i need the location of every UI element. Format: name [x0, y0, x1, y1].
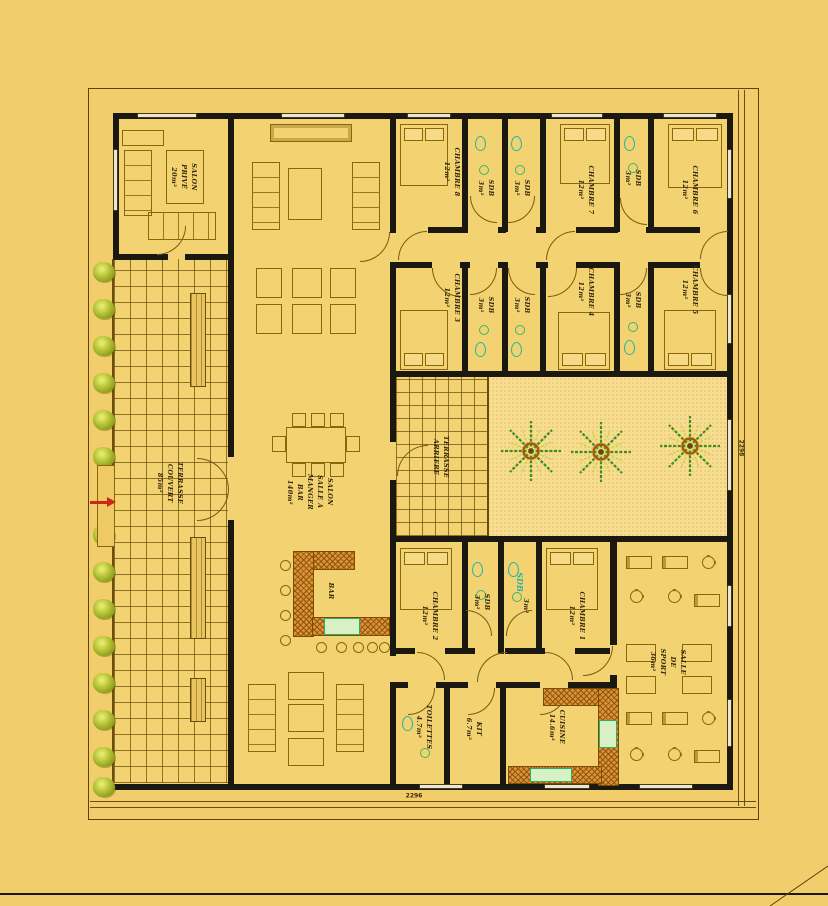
washbasin-icon: [515, 325, 525, 335]
palm-tree-icon: [652, 408, 728, 484]
sofa: [248, 684, 276, 752]
wall: [396, 371, 733, 377]
bush-icon: [93, 562, 115, 582]
window: [728, 420, 731, 490]
wall: [498, 542, 504, 654]
wall: [462, 268, 468, 376]
wall: [536, 542, 542, 654]
chair: [272, 436, 286, 452]
armchair: [288, 738, 324, 766]
sofa: [148, 212, 216, 240]
gym-mat: [626, 676, 656, 694]
window: [728, 295, 731, 343]
treadmill-icon: [662, 556, 688, 569]
bar-stool: [379, 642, 390, 653]
sink-unit: [324, 618, 360, 635]
toilet-icon: [472, 562, 483, 577]
terrace-tiles-couvert: [114, 259, 228, 783]
bush-icon: [93, 599, 115, 619]
armchair: [256, 268, 282, 298]
room-label-chambre-5: CHAMBRE 5 12m²: [680, 266, 700, 315]
exercise-bike-icon: [668, 748, 681, 761]
bush-icon: [93, 262, 115, 282]
wall: [396, 262, 432, 268]
dimension-label-bottom: 2296: [406, 793, 423, 800]
room-label-sdb: SDB 3m²: [476, 180, 496, 197]
room-label-sdb: SDB 3m²: [512, 180, 532, 197]
bush-icon: [93, 373, 115, 393]
bush-icon: [93, 710, 115, 730]
wall: [228, 254, 234, 457]
bar-counter: [293, 551, 314, 637]
window: [552, 114, 602, 117]
window: [640, 785, 692, 788]
wall: [390, 113, 396, 233]
chair: [311, 413, 325, 427]
room-label-sdb: SDB 3m²: [623, 292, 643, 309]
room-label-sdb-area: 3m²: [521, 598, 531, 613]
toilet-icon: [624, 136, 635, 151]
room-label-sdb: SDB 3m²: [512, 297, 532, 314]
table: [292, 304, 322, 334]
window: [728, 150, 731, 198]
bar-stool: [280, 585, 291, 596]
washbasin-icon: [479, 165, 489, 175]
palm-tree-icon: [563, 414, 639, 490]
bed: [664, 310, 716, 370]
wall: [648, 268, 654, 376]
bush-icon: [93, 336, 115, 356]
wall: [500, 688, 506, 784]
window: [728, 700, 731, 746]
room-label-kit: KIT 6.7m²: [464, 718, 484, 741]
toilet-icon: [511, 342, 522, 357]
room-label-chambre-6: CHAMBRE 6 12m²: [680, 166, 700, 215]
armchair: [288, 672, 324, 700]
dimension-line: [90, 807, 756, 808]
planter: [190, 537, 206, 639]
room-label-salon-prive: SALON PRIVÉ 20m²: [169, 163, 199, 190]
toilet-icon: [402, 716, 413, 731]
wall: [228, 113, 234, 260]
wall: [462, 113, 468, 232]
toilet-icon: [511, 136, 522, 151]
wall: [502, 268, 508, 376]
treadmill-icon: [626, 712, 652, 725]
dimension-line: [90, 801, 756, 802]
furniture: [122, 130, 164, 146]
window: [728, 586, 731, 626]
sofa: [124, 150, 152, 216]
window: [664, 114, 716, 117]
washbasin-icon: [479, 325, 489, 335]
window: [138, 114, 196, 117]
room-label-chambre-7: CHAMBRE 7 12m²: [576, 166, 596, 215]
bed: [558, 312, 610, 370]
dining-table: [286, 427, 346, 463]
room-label-terrasse-arriere: TERRASSE ARRIERE: [431, 436, 451, 478]
wall: [462, 542, 468, 654]
chair: [292, 413, 306, 427]
treadmill-icon: [662, 712, 688, 725]
floor-plan: SALON PRIVÉ 20m² TERRASSE COUVERT 85m² S…: [0, 0, 828, 906]
toilet-icon: [475, 342, 486, 357]
bed: [400, 124, 448, 186]
diagonal-line: [765, 858, 828, 906]
wall: [390, 262, 396, 442]
room-label-chambre-2: CHAMBRE 2 12m²: [420, 592, 440, 641]
wall: [396, 536, 733, 542]
wall: [436, 682, 468, 688]
bar-stool: [367, 642, 378, 653]
exercise-bike-icon: [668, 590, 681, 603]
wall: [576, 227, 618, 233]
entrance-arrow-icon: [90, 501, 107, 504]
bar-stool: [353, 642, 364, 653]
wall: [390, 682, 396, 784]
treadmill-icon: [626, 556, 652, 569]
chair: [330, 413, 344, 427]
entrance-arrow-head-icon: [107, 497, 116, 507]
room-label-chambre-1: CHAMBRE 1 12m²: [567, 592, 587, 641]
toilet-icon: [624, 340, 635, 355]
tv-console: [270, 124, 352, 142]
armchair: [256, 304, 282, 334]
washbasin-icon: [628, 322, 638, 332]
treadmill-icon: [694, 750, 720, 763]
room-label-chambre-8: CHAMBRE 8 12m²: [442, 148, 462, 197]
dimension-label-right: 2298: [738, 440, 745, 457]
planter: [190, 293, 206, 387]
washbasin-icon: [515, 165, 525, 175]
exercise-bike-icon: [630, 590, 643, 603]
room-label-salle-sport: SALLE DE SPORT 36m²: [648, 649, 688, 676]
wall: [444, 688, 450, 784]
room-label-toilettes: TOILETTES 4.7m²: [414, 705, 434, 750]
bush-icon: [93, 410, 115, 430]
wall: [614, 113, 620, 232]
window: [545, 785, 589, 788]
palm-tree-icon: [493, 413, 569, 489]
treadmill-icon: [694, 594, 720, 607]
wall: [445, 648, 475, 654]
wall: [396, 648, 415, 654]
wall: [390, 480, 396, 656]
exercise-bike-icon: [630, 748, 643, 761]
wall: [428, 227, 468, 233]
room-label-sdb-large: SDB: [515, 572, 525, 591]
room-label-chambre-3: CHAMBRE 3 12m²: [442, 274, 462, 323]
wall: [540, 268, 546, 376]
room-label-chambre-4: CHAMBRE 4 12m²: [576, 268, 596, 317]
wall: [648, 113, 654, 232]
kitchen-sink: [530, 768, 572, 782]
page-bottom-line: [0, 893, 828, 895]
window: [408, 114, 450, 117]
room-label-sdb: SDB 3m²: [623, 170, 643, 187]
bar-stool: [336, 642, 347, 653]
wall: [113, 254, 168, 260]
room-label-sdb: SDB 3m²: [476, 297, 496, 314]
sofa: [352, 162, 380, 230]
window: [282, 114, 344, 117]
exercise-bike-icon: [702, 556, 715, 569]
bush-icon: [93, 747, 115, 767]
armchair: [330, 304, 356, 334]
wall: [646, 227, 700, 233]
bar-stool: [280, 635, 291, 646]
window: [420, 785, 462, 788]
wall: [396, 682, 408, 688]
room-label-salon-main: SALON SALLE A MANGER BAR 140m²: [285, 474, 335, 510]
wall: [228, 520, 234, 784]
bar-stool: [280, 610, 291, 621]
chair: [346, 436, 360, 452]
planter: [190, 678, 206, 722]
wall: [610, 542, 617, 645]
room-label-terrasse-couvert: TERRASSE COUVERT 85m²: [155, 462, 185, 504]
room-label-sdb: SDB 3m²: [472, 594, 492, 611]
bush-icon: [93, 447, 115, 467]
window: [114, 150, 117, 210]
room-label-cuisine: CUISINE 14.6m²: [547, 710, 567, 745]
sofa: [252, 162, 280, 230]
bush-icon: [93, 777, 115, 797]
courtyard-divider-line: [487, 377, 489, 536]
bush-icon: [93, 636, 115, 656]
wall: [540, 113, 546, 232]
exercise-bike-icon: [702, 712, 715, 725]
bar-stool: [280, 560, 291, 571]
bush-icon: [93, 673, 115, 693]
bed: [400, 310, 448, 370]
table: [292, 268, 322, 298]
wall: [505, 648, 545, 654]
stove: [599, 720, 617, 748]
gym-mat: [682, 676, 712, 694]
wall: [536, 227, 546, 233]
room-label-bar: BAR: [326, 583, 336, 600]
sofa: [336, 684, 364, 752]
armchair: [330, 268, 356, 298]
wall: [185, 254, 234, 260]
table: [288, 168, 322, 220]
bar-stool: [316, 642, 327, 653]
wall: [498, 227, 506, 233]
bush-icon: [93, 299, 115, 319]
table: [288, 704, 324, 732]
toilet-icon: [475, 136, 486, 151]
